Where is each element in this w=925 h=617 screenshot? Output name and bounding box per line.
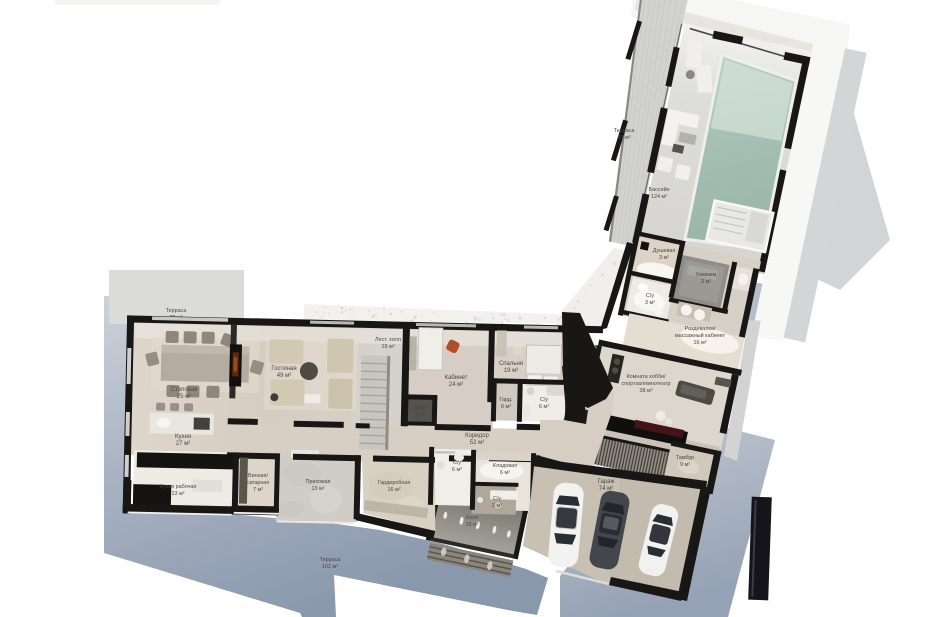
svg-text:124 м²: 124 м² xyxy=(651,194,667,200)
svg-text:3 м²: 3 м² xyxy=(492,503,502,509)
svg-text:3 м²: 3 м² xyxy=(701,279,711,285)
svg-text:7 м²: 7 м² xyxy=(253,487,263,493)
svg-text:Гард.: Гард. xyxy=(499,397,512,403)
svg-text:Винная/: Винная/ xyxy=(248,473,268,479)
svg-text:Столовая: Столовая xyxy=(171,387,198,393)
svg-text:С/у: С/у xyxy=(646,293,654,299)
svg-text:24 м²: 24 м² xyxy=(449,382,463,388)
svg-text:9 м²: 9 м² xyxy=(680,462,690,468)
svg-text:6 м²: 6 м² xyxy=(500,470,510,476)
svg-text:19 м²: 19 м² xyxy=(504,368,518,374)
svg-text:16 м²: 16 м² xyxy=(694,340,707,346)
svg-text:49 м²: 49 м² xyxy=(277,373,291,379)
svg-text:52 м²: 52 м² xyxy=(470,440,484,446)
svg-text:Бассейн: Бассейн xyxy=(649,186,670,193)
svg-text:38 м²: 38 м² xyxy=(640,388,653,394)
svg-text:Гараж: Гараж xyxy=(598,479,615,485)
svg-text:Холл: Холл xyxy=(466,515,479,521)
svg-text:6 м²: 6 м² xyxy=(501,404,511,410)
svg-text:Терраса: Терраса xyxy=(166,308,187,314)
svg-text:Терраса: Терраса xyxy=(320,557,341,563)
svg-text:Терраса: Терраса xyxy=(614,128,635,134)
svg-text:13 м²: 13 м² xyxy=(312,486,325,492)
svg-text:Прихожая: Прихожая xyxy=(306,479,331,485)
svg-text:Кухня: Кухня xyxy=(175,434,191,440)
svg-text:Комната хобби/: Комната хобби/ xyxy=(627,374,666,380)
svg-text:27 м²: 27 м² xyxy=(176,441,190,447)
svg-text:16 м²: 16 м² xyxy=(388,487,401,493)
svg-text:6 м²: 6 м² xyxy=(539,404,549,410)
svg-text:Кладовая: Кладовая xyxy=(493,463,517,469)
svg-text:Раздевалка/: Раздевалка/ xyxy=(685,326,716,332)
svg-text:3 м²: 3 м² xyxy=(645,300,655,306)
svg-text:Гардеробная: Гардеробная xyxy=(378,480,411,486)
svg-text:спортзал/кинотеатр: спортзал/кинотеатр xyxy=(621,381,670,387)
svg-text:Лест. холл: Лест. холл xyxy=(375,337,401,343)
svg-text:Коридор: Коридор xyxy=(465,433,489,439)
svg-text:С/у: С/у xyxy=(453,460,461,466)
svg-text:13 м²: 13 м² xyxy=(172,491,185,497)
svg-text:3 м²: 3 м² xyxy=(659,255,669,261)
svg-text:Хаммам: Хаммам xyxy=(696,272,717,278)
svg-text:41 м²: 41 м² xyxy=(618,135,631,141)
svg-text:Тамбур: Тамбур xyxy=(676,455,694,461)
svg-text:6 м²: 6 м² xyxy=(452,467,462,473)
svg-text:С/у: С/у xyxy=(540,397,548,403)
svg-text:С/у: С/у xyxy=(493,496,501,502)
svg-text:Кухня рабочая: Кухня рабочая xyxy=(160,484,197,490)
svg-text:Кабинет: Кабинет xyxy=(445,375,468,381)
svg-text:25 м²: 25 м² xyxy=(177,394,191,400)
svg-text:Душевая: Душевая xyxy=(653,248,676,254)
svg-text:Гостиная: Гостиная xyxy=(271,366,296,372)
svg-text:Лифт: Лифт xyxy=(414,405,428,411)
svg-text:массажный кабинет: массажный кабинет xyxy=(675,332,725,339)
svg-text:19 м²: 19 м² xyxy=(382,344,395,350)
svg-text:3 м²: 3 м² xyxy=(416,412,426,418)
svg-text:Спальня: Спальня xyxy=(499,361,523,367)
svg-text:74 м²: 74 м² xyxy=(599,486,613,492)
svg-text:сигарная: сигарная xyxy=(247,480,270,486)
svg-text:10 м²: 10 м² xyxy=(466,522,479,528)
svg-text:102 м²: 102 м² xyxy=(322,564,338,570)
